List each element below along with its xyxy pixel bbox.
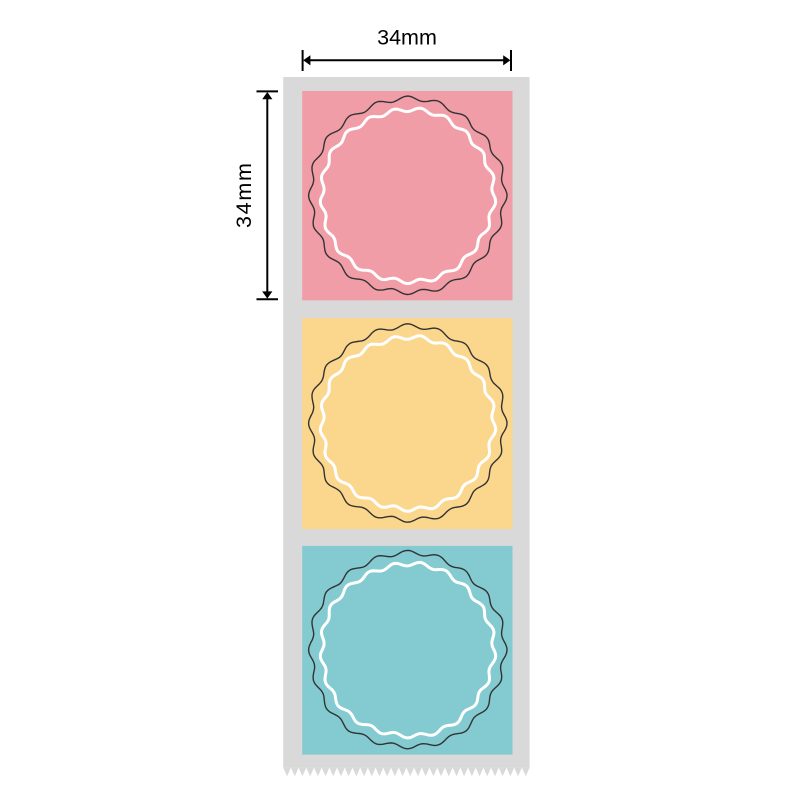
svg-text:34mm: 34mm xyxy=(232,161,256,228)
svg-text:34mm: 34mm xyxy=(377,26,437,50)
